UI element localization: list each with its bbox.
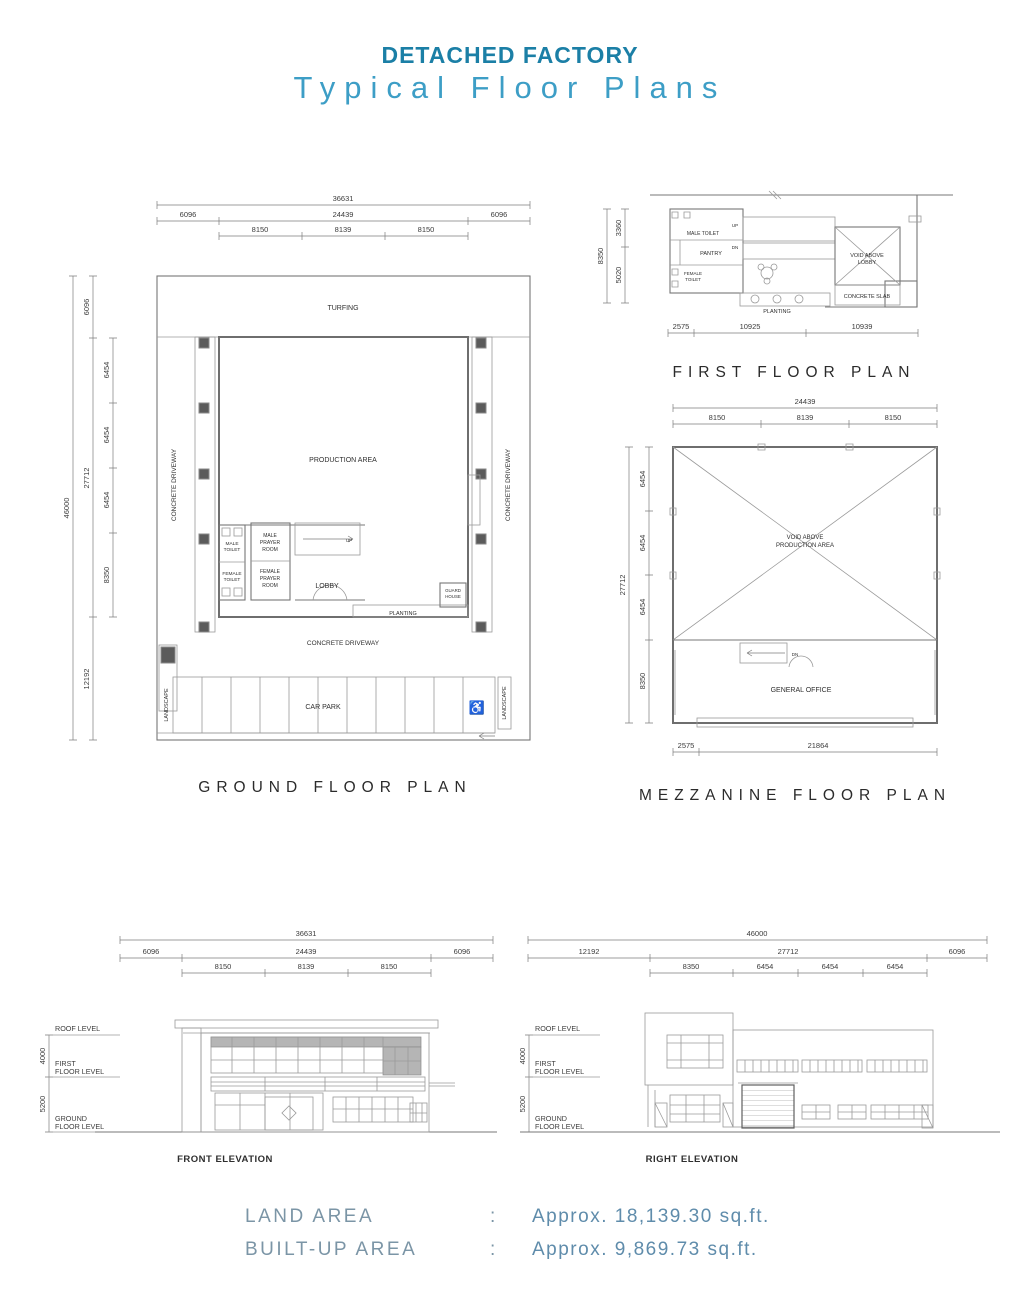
fe-dim: 8150 [381,962,398,971]
gf-landscape-right-label: LANDSCAPE [502,686,508,720]
fe-title: FRONT ELEVATION [177,1154,273,1165]
gf-male-prayer-label: ROOM [262,547,278,553]
mz-dim: 8150 [885,413,902,422]
ff-female-toilet-label: FEMALE [684,271,702,276]
gf-dim: 8139 [335,225,352,234]
gf-female-toilet-label: FEMALE [222,571,241,577]
re-dim: 4000 [518,1048,527,1065]
gf-landscape-left-label: LANDSCAPE [164,688,170,722]
re-dim: 6454 [757,962,774,971]
gf-dim: 6096 [180,210,197,219]
ground-floor-plan: 36631 6096 24439 6096 8150 8139 8150 460… [55,185,555,810]
fe-dim: 6096 [143,947,160,956]
gf-lobby-label: LOBBY [315,583,339,590]
fe-dim: 6096 [454,947,471,956]
re-dim: 5200 [518,1096,527,1113]
ff-dim: 2575 [673,322,690,331]
ff-pantry-label: PANTRY [700,251,722,257]
re-roof-level-label: ROOF LEVEL [535,1024,580,1033]
mz-dn-label: DN [792,652,799,657]
gf-dim: 6096 [491,210,508,219]
fe-first-level-label: FLOOR LEVEL [55,1067,104,1076]
ff-male-toilet-label: MALE TOILET [687,231,719,237]
mz-void-label: PRODUCTION AREA [776,543,834,549]
fe-building [95,1020,497,1132]
fe-dim: 8139 [298,962,315,971]
gf-driveway-right-label: CONCRETE DRIVEWAY [505,448,512,521]
mz-dim: 6454 [638,535,647,552]
built-up-area-value: Approx. 9,869.73 sq.ft. [532,1239,845,1261]
ff-void-label: VOID ABOVE [850,253,884,259]
fe-dimension-labels: 36631 6096 24439 6096 8150 8139 8150 400… [38,929,470,1112]
ff-dimension-lines [603,209,918,337]
gf-dim: 6454 [102,492,111,509]
gf-guard-house-label: GUARD [445,588,461,593]
ff-dim: 3360 [614,220,623,237]
mz-dim: 2575 [678,741,695,750]
gf-turfing-label: TURFING [327,305,358,312]
fe-dim: 8150 [215,962,232,971]
gf-planting-label: PLANTING [389,611,417,617]
mz-general-office-label: GENERAL OFFICE [771,687,832,694]
fe-dim: 24439 [296,947,317,956]
fe-roof-level-label: ROOF LEVEL [55,1024,100,1033]
gf-dim: 24439 [333,210,354,219]
page-subtitle: Typical Floor Plans [0,70,1020,106]
gf-female-prayer-label: FEMALE [260,569,281,575]
gf-building [219,337,480,617]
land-area-label: LAND AREA [245,1206,490,1228]
area-summary: LAND AREA : Approx. 18,139.30 sq.ft. BUI… [245,1206,845,1272]
land-area-colon: : [490,1206,532,1228]
fe-level-lines: ROOF LEVEL FIRST FLOOR LEVEL GROUND FLOO… [45,1024,120,1132]
gf-male-toilet-label: TOILET [224,547,241,553]
mz-plan [670,444,940,727]
ff-dim: 5020 [614,267,623,284]
gf-male-prayer-label: PRAYER [260,540,281,546]
gf-female-prayer-label: PRAYER [260,576,281,582]
re-dim: 6096 [949,947,966,956]
gf-dim: 36631 [333,194,354,203]
first-floor-plan: 8350 3360 5020 2575 10925 10939 MALE TOI… [595,185,955,395]
mz-dim: 8350 [638,673,647,690]
mz-dim: 21864 [808,741,829,750]
mezzanine-floor-plan: 24439 8150 8139 8150 27712 6454 6454 645… [615,390,960,815]
gf-up-label: UP [346,538,352,543]
fe-dim: 5200 [38,1096,47,1113]
ff-title: FIRST FLOOR PLAN [673,364,916,381]
gf-dim: 46000 [62,498,71,519]
fe-dimension-lines [45,936,493,1132]
ff-up-label: UP [732,223,738,228]
gf-male-toilet-label: MALE [225,541,238,547]
ff-dn-label: DN [732,245,739,250]
ff-dimension-labels: 8350 3360 5020 2575 10925 10939 [596,220,872,331]
front-elevation: 36631 6096 24439 6096 8150 8139 8150 400… [25,925,505,1175]
re-dim: 6454 [887,962,904,971]
mz-dim: 24439 [795,397,816,406]
gf-guard-house-label: HOUSE [445,594,461,599]
gf-driveway-left-label: CONCRETE DRIVEWAY [171,448,178,521]
ff-dim: 10939 [852,322,873,331]
handicap-icon: ♿ [469,700,485,715]
land-area-row: LAND AREA : Approx. 18,139.30 sq.ft. [245,1206,845,1228]
built-up-area-colon: : [490,1239,532,1261]
gf-dim: 8350 [102,567,111,584]
gf-dim: 27712 [82,468,91,489]
land-area-value: Approx. 18,139.30 sq.ft. [532,1206,845,1228]
re-dim: 27712 [778,947,799,956]
gf-site [157,276,530,740]
re-dim: 6454 [822,962,839,971]
ff-dim: 8350 [596,248,605,265]
mz-dim: 27712 [618,575,627,596]
mz-dim: 8150 [709,413,726,422]
ff-female-toilet-label: TOILET [685,277,701,282]
re-building [520,1013,1000,1132]
re-dim: 8350 [683,962,700,971]
right-elevation: 46000 12192 27712 6096 8350 6454 6454 64… [505,925,1015,1175]
gf-dim: 6096 [82,299,91,316]
gf-dimension-labels: 36631 6096 24439 6096 8150 8139 8150 460… [62,194,507,689]
ff-room-labels: MALE TOILET PANTRY FEMALE TOILET UP DN V… [684,223,891,315]
gf-dim: 6454 [102,427,111,444]
re-title: RIGHT ELEVATION [646,1154,739,1165]
mz-room-labels: VOID ABOVE PRODUCTION AREA GENERAL OFFIC… [771,535,834,694]
gf-driveway-bottom-label: CONCRETE DRIVEWAY [307,640,380,647]
fe-dim: 36631 [296,929,317,938]
gf-dimension-lines [69,201,530,740]
gf-male-prayer-label: MALE [263,533,277,539]
gf-dim: 8150 [418,225,435,234]
mz-dim: 8139 [797,413,814,422]
ff-planting-label: PLANTING [763,309,791,315]
fe-ground-level-label: FLOOR LEVEL [55,1122,104,1131]
ff-dim: 10925 [740,322,761,331]
re-ground-level-label: FLOOR LEVEL [535,1122,584,1131]
re-level-lines: ROOF LEVEL FIRST FLOOR LEVEL GROUND FLOO… [525,1024,600,1132]
gf-dim: 6454 [102,362,111,379]
gf-title: GROUND FLOOR PLAN [198,779,471,796]
mz-void-label: VOID ABOVE [787,535,824,541]
gf-car-park-label: CAR PARK [305,704,341,711]
built-up-area-row: BUILT-UP AREA : Approx. 9,869.73 sq.ft. [245,1239,845,1261]
gf-female-prayer-label: ROOM [262,583,278,589]
mz-dim: 6454 [638,471,647,488]
ff-plan [650,191,953,307]
gf-dim: 8150 [252,225,269,234]
mz-dim: 6454 [638,599,647,616]
gf-room-labels: TURFING PRODUCTION AREA CONCRETE DRIVEWA… [164,305,512,722]
built-up-area-label: BUILT-UP AREA [245,1239,490,1261]
ff-void-label: LOBBY [858,260,877,266]
mz-dimension-lines [625,404,937,756]
re-first-level-label: FLOOR LEVEL [535,1067,584,1076]
re-dim: 12192 [579,947,600,956]
gf-production-label: PRODUCTION AREA [309,457,377,464]
mz-title: MEZZANINE FLOOR PLAN [639,787,951,804]
gf-female-toilet-label: TOILET [224,577,241,583]
gf-dim: 12192 [82,669,91,690]
page-title: DETACHED FACTORY [0,42,1020,69]
re-dim: 46000 [747,929,768,938]
ff-concrete-slab-label: CONCRETE SLAB [844,294,891,300]
fe-dim: 4000 [38,1048,47,1065]
